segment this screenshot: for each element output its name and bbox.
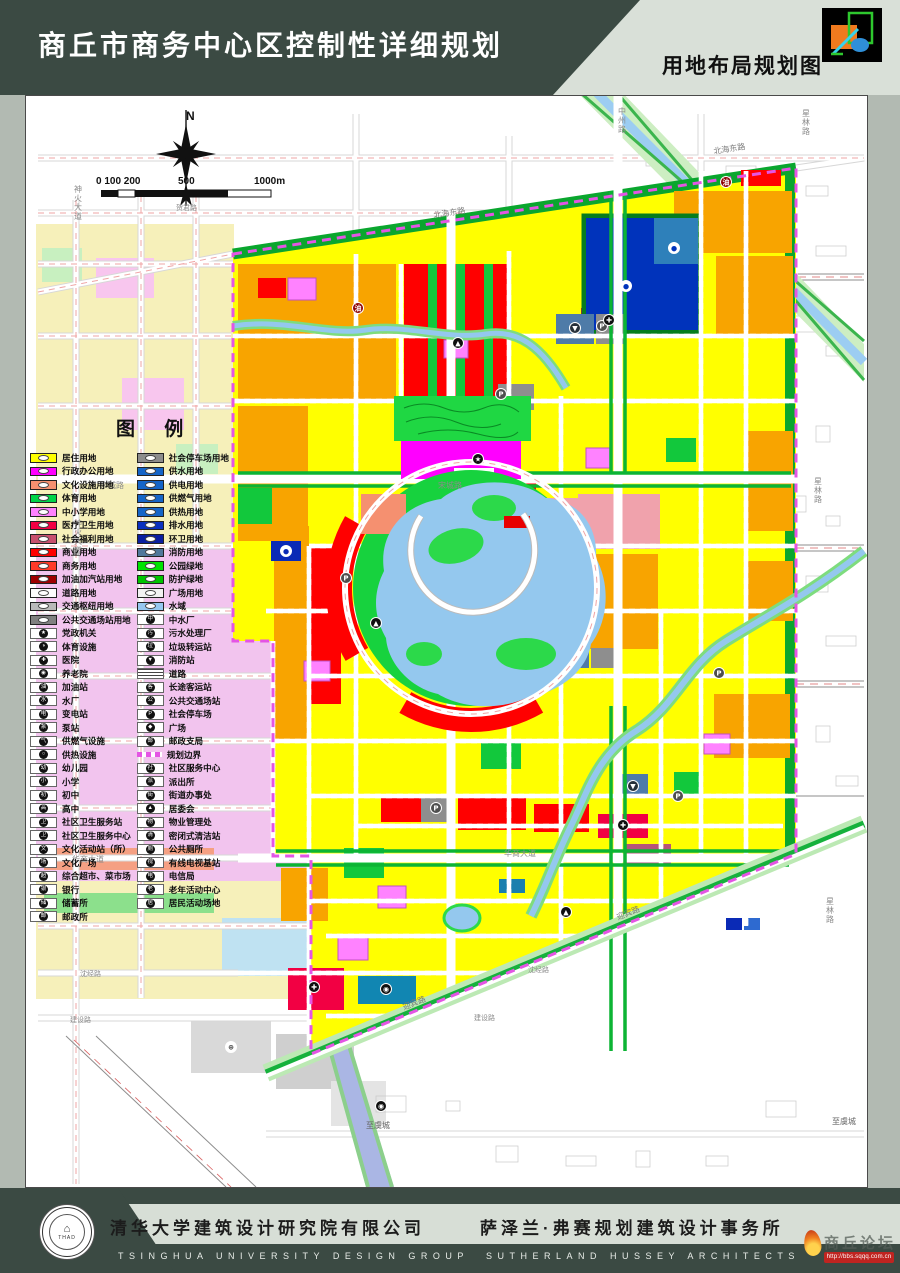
legend-item: 消防用地 (137, 546, 229, 560)
footer: ⌂ THAD 清华大学建筑设计研究院有限公司 萨泽兰·弗赛规划建筑设计事务所 T… (0, 1188, 900, 1273)
legend-item-label: 垃圾转运站 (169, 641, 212, 653)
facility-glyph: 中 (146, 615, 155, 624)
legend-chip-oval (38, 576, 49, 582)
legend-chip-oval (145, 549, 156, 555)
legend-item-label: 公共交通场站 (169, 695, 221, 707)
legend-item-label: 变电站 (62, 708, 88, 720)
legend-color-chip (30, 548, 57, 558)
legend-item: 文文化活动站（所） (30, 843, 131, 857)
legend-item: 幼幼儿园 (30, 762, 131, 776)
svg-text:P: P (675, 793, 680, 801)
facility-glyph: 垃 (146, 642, 155, 651)
legend-item: 清密闭式清洁站 (137, 829, 229, 843)
flame-icon (802, 1229, 822, 1257)
road-label: 北海东路 (713, 141, 746, 156)
legend-item: 街街道办事处 (137, 789, 229, 803)
facility-symbol-icon: ✚ (30, 655, 57, 666)
facility-glyph: 银 (39, 885, 48, 894)
company-en-2: SUTHERLAND HUSSEY ARCHITECTS (486, 1251, 800, 1261)
legend-item-label: 物业管理处 (169, 816, 212, 828)
facility-glyph: 小 (39, 777, 48, 786)
scale-bar (101, 190, 271, 197)
facility-glyph: 视 (146, 858, 155, 867)
legend-chip-oval (38, 455, 49, 461)
legend-item-label: 初中 (62, 789, 79, 801)
facility-symbol-icon: 高 (30, 803, 57, 814)
facility-glyph: 泵 (39, 723, 48, 732)
legend-item: 视有线电视基站 (137, 856, 229, 870)
legend-chip-oval (38, 522, 49, 528)
legend-chip-oval (145, 455, 156, 461)
legend-item-label: 居民活动场地 (169, 897, 221, 909)
legend-item-label: 泵站 (62, 722, 79, 734)
road-label: 贺君路 (176, 203, 197, 212)
legend-item: ○供热设施 (30, 748, 131, 762)
legend-item-label: 排水用地 (169, 519, 203, 531)
legend-item: 泵泵站 (30, 721, 131, 735)
facility-symbol-icon: 小 (30, 776, 57, 787)
legend-item: 公共交通场站用地 (30, 613, 131, 627)
map-sheet: 神火大道神火大道贺君路中州路北海东路北海东路星林路星林路星林路宋城路宋城路华商大… (25, 95, 868, 1188)
legend-item: 居居民活动场地 (137, 897, 229, 911)
legend-chip-oval (38, 563, 49, 569)
facility-glyph: 水 (39, 696, 48, 705)
legend-item-label: 规划边界 (167, 749, 201, 761)
legend-chip-oval (145, 576, 156, 582)
legend-item: 供电用地 (137, 478, 229, 492)
facility-symbol-icon: 街 (137, 790, 164, 801)
facility-symbol-icon: ▲ (137, 803, 164, 814)
facility-glyph: 客 (146, 683, 155, 692)
legend-item-label: 幼儿园 (62, 762, 88, 774)
thad-seal-icon: ⌂ THAD (42, 1207, 92, 1257)
legend-item: 加油加汽站用地 (30, 573, 131, 587)
road-label: 中州路 (618, 106, 626, 134)
legend-item-label: 文化活动站（所） (62, 843, 131, 855)
legend-item-label: 水域 (169, 600, 186, 612)
legend-item-label: 供燃气用地 (169, 492, 212, 504)
legend-item-label: 文化设施用地 (62, 479, 114, 491)
legend-item-label: 医院 (62, 654, 79, 666)
facility-glyph: ▼ (146, 656, 155, 665)
legend-item-label: 交通枢纽用地 (62, 600, 114, 612)
legend-item-label: 医疗卫生用地 (62, 519, 114, 531)
svg-text:◉: ◉ (378, 1103, 384, 1111)
map-badge-●: ● (621, 281, 632, 292)
legend-color-chip (137, 534, 164, 544)
legend-item-label: 社会福利用地 (62, 533, 114, 545)
legend-item: 油加油站 (30, 681, 131, 695)
map-badge-◉: ◉ (381, 984, 392, 995)
legend-item-label: 邮政所 (62, 911, 88, 923)
legend-item: ★党政机关 (30, 627, 131, 641)
map-badge-★: ★ (473, 454, 484, 465)
planning-logo-art (822, 8, 882, 62)
svg-text:P: P (498, 391, 503, 399)
facility-glyph: ◑ (39, 642, 48, 651)
map-badge-油: 油 (353, 303, 364, 314)
legend-item: 道路 (137, 667, 229, 681)
facility-glyph: 储 (39, 899, 48, 908)
legend-item: 医疗卫生用地 (30, 519, 131, 533)
map-badge-P: P (714, 668, 725, 679)
facility-symbol-icon: 超 (30, 871, 57, 882)
facility-symbol-icon: 垃 (137, 641, 164, 652)
legend-item-label: 文化广场 (62, 857, 96, 869)
legend-item: 商务用地 (30, 559, 131, 573)
legend-item: 派派出所 (137, 775, 229, 789)
legend-item-label: 社区卫生服务中心 (62, 830, 131, 842)
map-badge-▼: ▼ (570, 323, 581, 334)
legend-item-label: 商务用地 (62, 560, 96, 572)
facility-glyph: P (146, 710, 155, 719)
legend-item: 广场用地 (137, 586, 229, 600)
legend-item: 中中水厂 (137, 613, 229, 627)
legend-item: 防护绿地 (137, 573, 229, 587)
legend-color-chip (30, 480, 57, 490)
legend-item: 电变电站 (30, 708, 131, 722)
road-label: 500 (178, 176, 195, 187)
legend-color-chip (30, 588, 57, 598)
svg-text:★: ★ (475, 456, 481, 464)
legend-item-label: 高中 (62, 803, 79, 815)
facility-glyph: 卫 (39, 831, 48, 840)
svg-text:✚: ✚ (620, 822, 626, 830)
seal-building-glyph: ⌂ (64, 1224, 71, 1235)
facility-symbol-icon: 社 (137, 763, 164, 774)
legend-chip-oval (145, 509, 156, 515)
legend-item-label: 供燃气设施 (62, 735, 105, 747)
facility-symbol-icon: 老 (137, 884, 164, 895)
legend-item: 公公共交通场站 (137, 694, 229, 708)
facility-symbol-icon: 厕 (137, 844, 164, 855)
legend-color-chip (137, 602, 164, 612)
page: 商丘市商务中心区控制性详细规划 用地布局规划图 (0, 0, 900, 1273)
facility-symbol-icon: ◆ (137, 722, 164, 733)
svg-text:▼: ▼ (630, 783, 636, 791)
road-label: 宋城路 (438, 480, 462, 490)
legend-item-label: 综合超市、菜市场 (62, 870, 131, 882)
legend-color-chip (137, 507, 164, 517)
facility-glyph: ○ (39, 750, 48, 759)
facility-glyph: 派 (146, 777, 155, 786)
road-label: 建设路 (70, 1015, 91, 1024)
legend-chip-oval (145, 563, 156, 569)
road-label: 神火大道 (74, 184, 82, 221)
facility-symbol-icon: 居 (137, 898, 164, 909)
svg-text:●: ● (623, 283, 629, 291)
facility-symbol-icon: 派 (137, 776, 164, 787)
svg-text:✚: ✚ (311, 984, 317, 992)
legend-item-label: 邮政支局 (169, 735, 203, 747)
facility-symbol-icon: ▼ (137, 655, 164, 666)
facility-glyph: 污 (146, 629, 155, 638)
legend-color-chip (137, 494, 164, 504)
facility-symbol-icon: 卫 (30, 817, 57, 828)
facility-glyph: ✚ (39, 656, 48, 665)
legend-item-label: 街道办事处 (169, 789, 212, 801)
legend-item-label: 广场用地 (169, 587, 203, 599)
legend-item: 小小学 (30, 775, 131, 789)
facility-symbol-icon: 水 (30, 695, 57, 706)
map-badge-P: P (431, 803, 442, 814)
road-label: N (186, 109, 195, 123)
svg-text:P: P (599, 323, 604, 331)
legend-item-label: 消防站 (169, 654, 195, 666)
legend-color-chip (30, 494, 57, 504)
legend-chip-oval (38, 468, 49, 474)
map-badge-✚: ✚ (618, 820, 629, 831)
facility-glyph: 场 (39, 858, 48, 867)
legend-chip-oval (145, 603, 156, 609)
map-badge-◉: ◉ (376, 1101, 387, 1112)
header: 商丘市商务中心区控制性详细规划 用地布局规划图 (0, 0, 900, 95)
map-badge-✚: ✚ (604, 315, 615, 326)
legend-item: 污污水处理厂 (137, 627, 229, 641)
legend-color-chip (137, 561, 164, 571)
legend-item-label: 老年活动中心 (169, 884, 221, 896)
svg-text:P: P (433, 805, 438, 813)
facility-glyph: 卫 (39, 818, 48, 827)
legend-chip-oval (145, 536, 156, 542)
legend-chip-oval (38, 603, 49, 609)
svg-text:●: ● (671, 245, 677, 253)
legend-item: 气供燃气设施 (30, 735, 131, 749)
watermark-url: http://bbs.sqqq.com.cn (824, 1252, 894, 1263)
svg-text:✚: ✚ (606, 317, 612, 325)
legend-item-label: 社区卫生服务站 (62, 816, 122, 828)
svg-text:P: P (343, 575, 348, 583)
map-badge-P: P (673, 791, 684, 802)
legend-color-chip (30, 534, 57, 544)
legend-item-label: 社会停车场 (169, 708, 212, 720)
svg-text:⊕: ⊕ (228, 1044, 234, 1052)
legend-color-chip (137, 521, 164, 531)
road-label: 华商大道 (504, 848, 536, 858)
facility-symbol-icon: 中 (137, 614, 164, 625)
road-label: 沈经路 (528, 965, 549, 974)
facility-glyph: 邮 (39, 912, 48, 921)
facility-glyph: 居 (146, 899, 155, 908)
facility-symbol-icon: 物 (137, 817, 164, 828)
legend-item: 银银行 (30, 883, 131, 897)
facility-glyph: ◆ (146, 723, 155, 732)
legend-chip-oval (145, 522, 156, 528)
facility-symbol-icon: P (137, 709, 164, 720)
legend-item-label: 供水用地 (169, 465, 203, 477)
svg-text:◉: ◉ (383, 986, 389, 994)
legend-item-label: 党政机关 (62, 627, 96, 639)
facility-symbol-icon: 卫 (30, 830, 57, 841)
legend-item: 居住用地 (30, 451, 131, 465)
legend-color-chip (30, 602, 57, 612)
legend-item: 文化设施用地 (30, 478, 131, 492)
legend-item-label: 居住用地 (62, 452, 96, 464)
legend-column: 居住用地行政办公用地文化设施用地体育用地中小学用地医疗卫生用地社会福利用地商业用… (30, 451, 131, 924)
facility-symbol-icon: 文 (30, 844, 57, 855)
legend-item: 水水厂 (30, 694, 131, 708)
facility-symbol-icon: 初 (30, 790, 57, 801)
facility-symbol-icon: 储 (30, 898, 57, 909)
legend-chip-oval (145, 495, 156, 501)
legend-item: 老老年活动中心 (137, 883, 229, 897)
facility-glyph: 邮 (146, 737, 155, 746)
road-label: 至虞城 (366, 1120, 390, 1130)
legend-item-label: 供热用地 (169, 506, 203, 518)
boundary-symbol-icon (137, 752, 162, 757)
facility-symbol-icon: 公 (137, 695, 164, 706)
road-symbol-icon (137, 668, 164, 679)
map-badge-●: ● (669, 243, 680, 254)
svg-text:油: 油 (723, 178, 730, 187)
legend-item: 超综合超市、菜市场 (30, 870, 131, 884)
legend-color-chip (137, 467, 164, 477)
legend-color-chip (30, 507, 57, 517)
legend-chip-oval (145, 590, 156, 596)
legend-item: 商业用地 (30, 546, 131, 560)
facility-glyph: ▲ (146, 804, 155, 813)
facility-glyph: 公 (146, 696, 155, 705)
legend-item: 规划边界 (137, 748, 229, 762)
facility-symbol-icon: ○ (30, 749, 57, 760)
facility-symbol-icon: 电 (137, 871, 164, 882)
legend-color-chip (137, 588, 164, 598)
legend-item: 体育用地 (30, 492, 131, 506)
watermark-name: 商丘论坛 (824, 1232, 896, 1253)
legend-chip-oval (38, 617, 49, 623)
road-label: 至虞城 (832, 1116, 856, 1126)
road-label: 星林路 (814, 477, 822, 504)
facility-glyph: 清 (146, 831, 155, 840)
legend-color-chip (30, 575, 57, 585)
facility-glyph: ★ (39, 629, 48, 638)
facility-symbol-icon: 邮 (137, 736, 164, 747)
map-sheet-label: 用地布局规划图 (662, 50, 823, 80)
legend-item-label: 居委会 (169, 803, 195, 815)
facility-glyph: 电 (146, 872, 155, 881)
road-label: 沈经路 (80, 969, 101, 978)
facility-symbol-icon: 场 (30, 857, 57, 868)
legend-item: 排水用地 (137, 519, 229, 533)
legend: 图 例 居住用地行政办公用地文化设施用地体育用地中小学用地医疗卫生用地社会福利用… (30, 414, 330, 924)
legend-item: 邮邮政支局 (137, 735, 229, 749)
legend-item: 水域 (137, 600, 229, 614)
legend-item: 邮邮政所 (30, 910, 131, 924)
legend-item: 厕公共厕所 (137, 843, 229, 857)
legend-item: 储储蓄所 (30, 897, 131, 911)
seal-text: THAD (58, 1235, 76, 1241)
legend-item: 高高中 (30, 802, 131, 816)
facility-glyph: 油 (39, 683, 48, 692)
legend-color-chip (137, 575, 164, 585)
legend-item: 行政办公用地 (30, 465, 131, 479)
legend-chip-oval (38, 549, 49, 555)
legend-item: 垃垃圾转运站 (137, 640, 229, 654)
legend-item-label: 道路 (169, 668, 186, 680)
legend-item: 电电信局 (137, 870, 229, 884)
company-cn-2: 萨泽兰·弗赛规划建筑设计事务所 (480, 1214, 784, 1239)
legend-item: ◉养老院 (30, 667, 131, 681)
svg-text:▼: ▼ (572, 325, 578, 333)
legend-item: 客长途客运站 (137, 681, 229, 695)
legend-item-label: 供热设施 (62, 749, 96, 761)
legend-item-label: 道路用地 (62, 587, 96, 599)
legend-color-chip (30, 453, 57, 463)
legend-item: P社会停车场 (137, 708, 229, 722)
legend-item: 交通枢纽用地 (30, 600, 131, 614)
legend-item: 物物业管理处 (137, 816, 229, 830)
legend-item-label: 体育用地 (62, 492, 96, 504)
legend-title: 图 例 (116, 414, 330, 441)
map-badge-✚: ✚ (309, 982, 320, 993)
legend-item: 公园绿地 (137, 559, 229, 573)
road-label: 1000m (254, 176, 285, 187)
facility-symbol-icon: ◑ (30, 641, 57, 652)
legend-item-label: 银行 (62, 884, 79, 896)
legend-item-label: 有线电视基站 (169, 857, 221, 869)
facility-symbol-icon: 视 (137, 857, 164, 868)
facility-symbol-icon: 银 (30, 884, 57, 895)
facility-glyph: 幼 (39, 764, 48, 773)
facility-symbol-icon: 清 (137, 830, 164, 841)
legend-item-label: 加油加汽站用地 (62, 573, 122, 585)
legend-color-chip (137, 548, 164, 558)
road-label: 0 100 200 (96, 176, 141, 187)
road-label: 星林路 (826, 897, 834, 924)
facility-glyph: 电 (39, 710, 48, 719)
contour-park (394, 396, 531, 441)
facility-glyph: 文 (39, 845, 48, 854)
legend-item-label: 广场 (169, 722, 186, 734)
legend-chip-oval (145, 468, 156, 474)
legend-item: 供燃气用地 (137, 492, 229, 506)
legend-item: 社会停车场用地 (137, 451, 229, 465)
legend-item-label: 电信局 (169, 870, 195, 882)
legend-color-chip (30, 467, 57, 477)
legend-item-label: 中水厂 (169, 614, 195, 626)
legend-item-label: 社区服务中心 (169, 762, 221, 774)
map-badge-P: P (341, 573, 352, 584)
legend-item: ✚医院 (30, 654, 131, 668)
facility-symbol-icon: 幼 (30, 763, 57, 774)
facility-symbol-icon: 油 (30, 682, 57, 693)
facility-glyph: 厕 (146, 845, 155, 854)
legend-item: 环卫用地 (137, 532, 229, 546)
legend-item-label: 水厂 (62, 695, 79, 707)
facility-symbol-icon: 电 (30, 709, 57, 720)
facility-glyph: 社 (146, 764, 155, 773)
legend-item-label: 派出所 (169, 776, 195, 788)
facility-symbol-icon: ★ (30, 628, 57, 639)
map-badge-▲: ▲ (561, 907, 572, 918)
legend-chip-oval (38, 482, 49, 488)
facility-symbol-icon: 泵 (30, 722, 57, 733)
map-badge-▲: ▲ (453, 338, 464, 349)
legend-column: 社会停车场用地供水用地供电用地供燃气用地供热用地排水用地环卫用地消防用地公园绿地… (137, 451, 229, 924)
legend-item-label: 加油站 (62, 681, 88, 693)
legend-item: 供水用地 (137, 465, 229, 479)
legend-color-chip (30, 615, 57, 625)
legend-columns: 居住用地行政办公用地文化设施用地体育用地中小学用地医疗卫生用地社会福利用地商业用… (30, 451, 330, 924)
legend-item: ◑体育设施 (30, 640, 131, 654)
legend-item: ▼消防站 (137, 654, 229, 668)
legend-item-label: 公园绿地 (169, 560, 203, 572)
legend-item: ▲居委会 (137, 802, 229, 816)
legend-item-label: 长途客运站 (169, 681, 212, 693)
svg-text:▲: ▲ (373, 620, 379, 628)
legend-item: 中小学用地 (30, 505, 131, 519)
legend-item-label: 防护绿地 (169, 573, 203, 585)
